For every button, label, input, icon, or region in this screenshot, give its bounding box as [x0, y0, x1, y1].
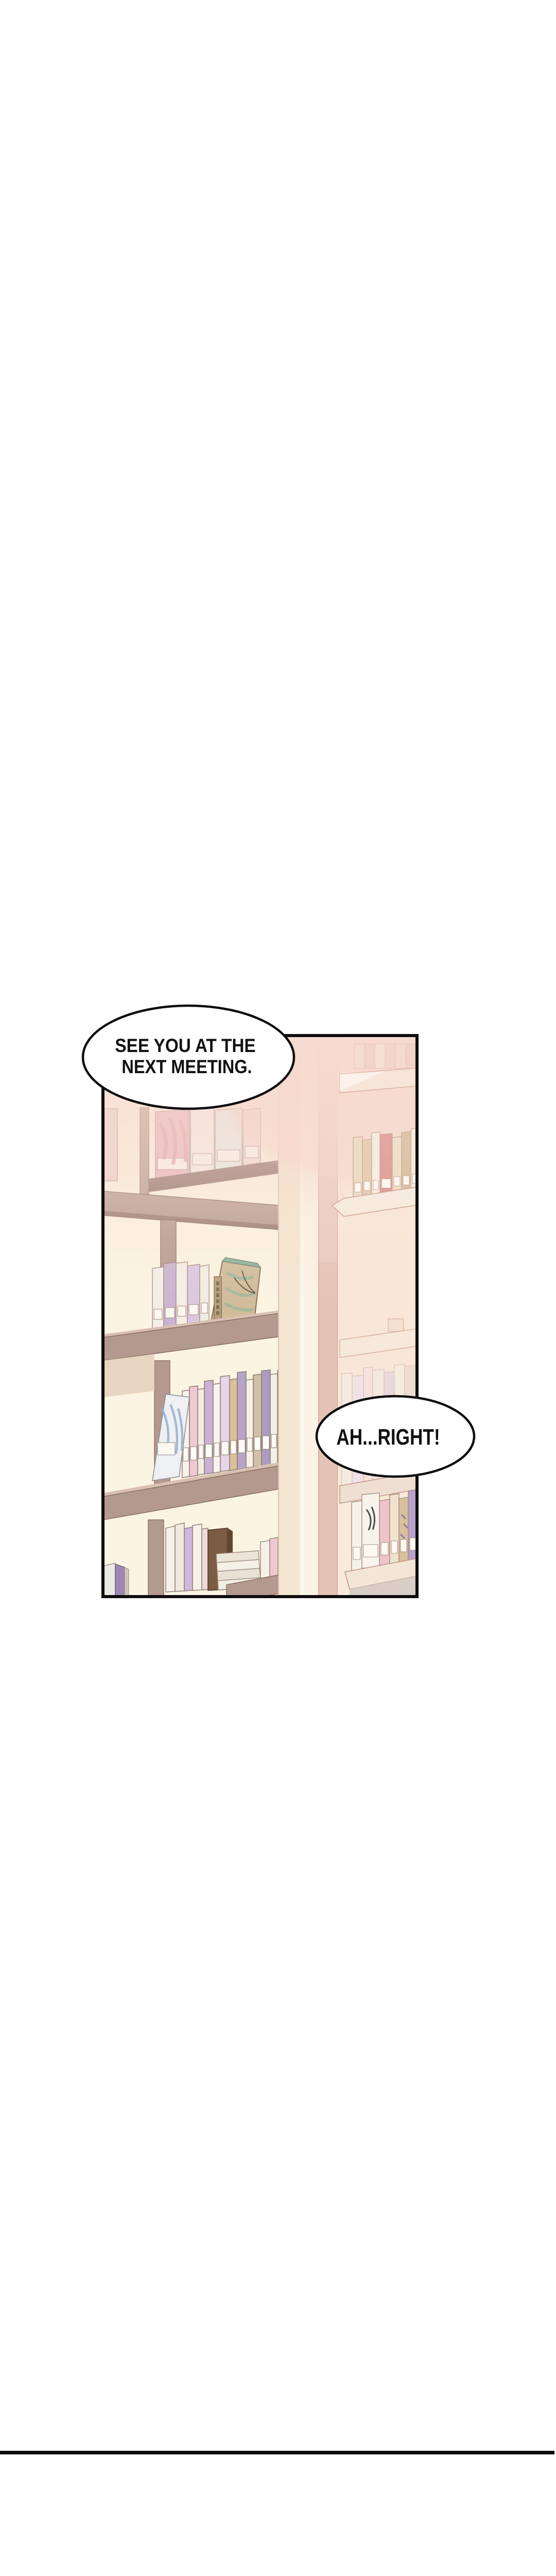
svg-text:NEXT MEETING.: NEXT MEETING. — [121, 1056, 252, 1077]
svg-text:AH...RIGHT!: AH...RIGHT! — [336, 1425, 440, 1450]
svg-text:SEE YOU AT THE: SEE YOU AT THE — [115, 1035, 255, 1056]
